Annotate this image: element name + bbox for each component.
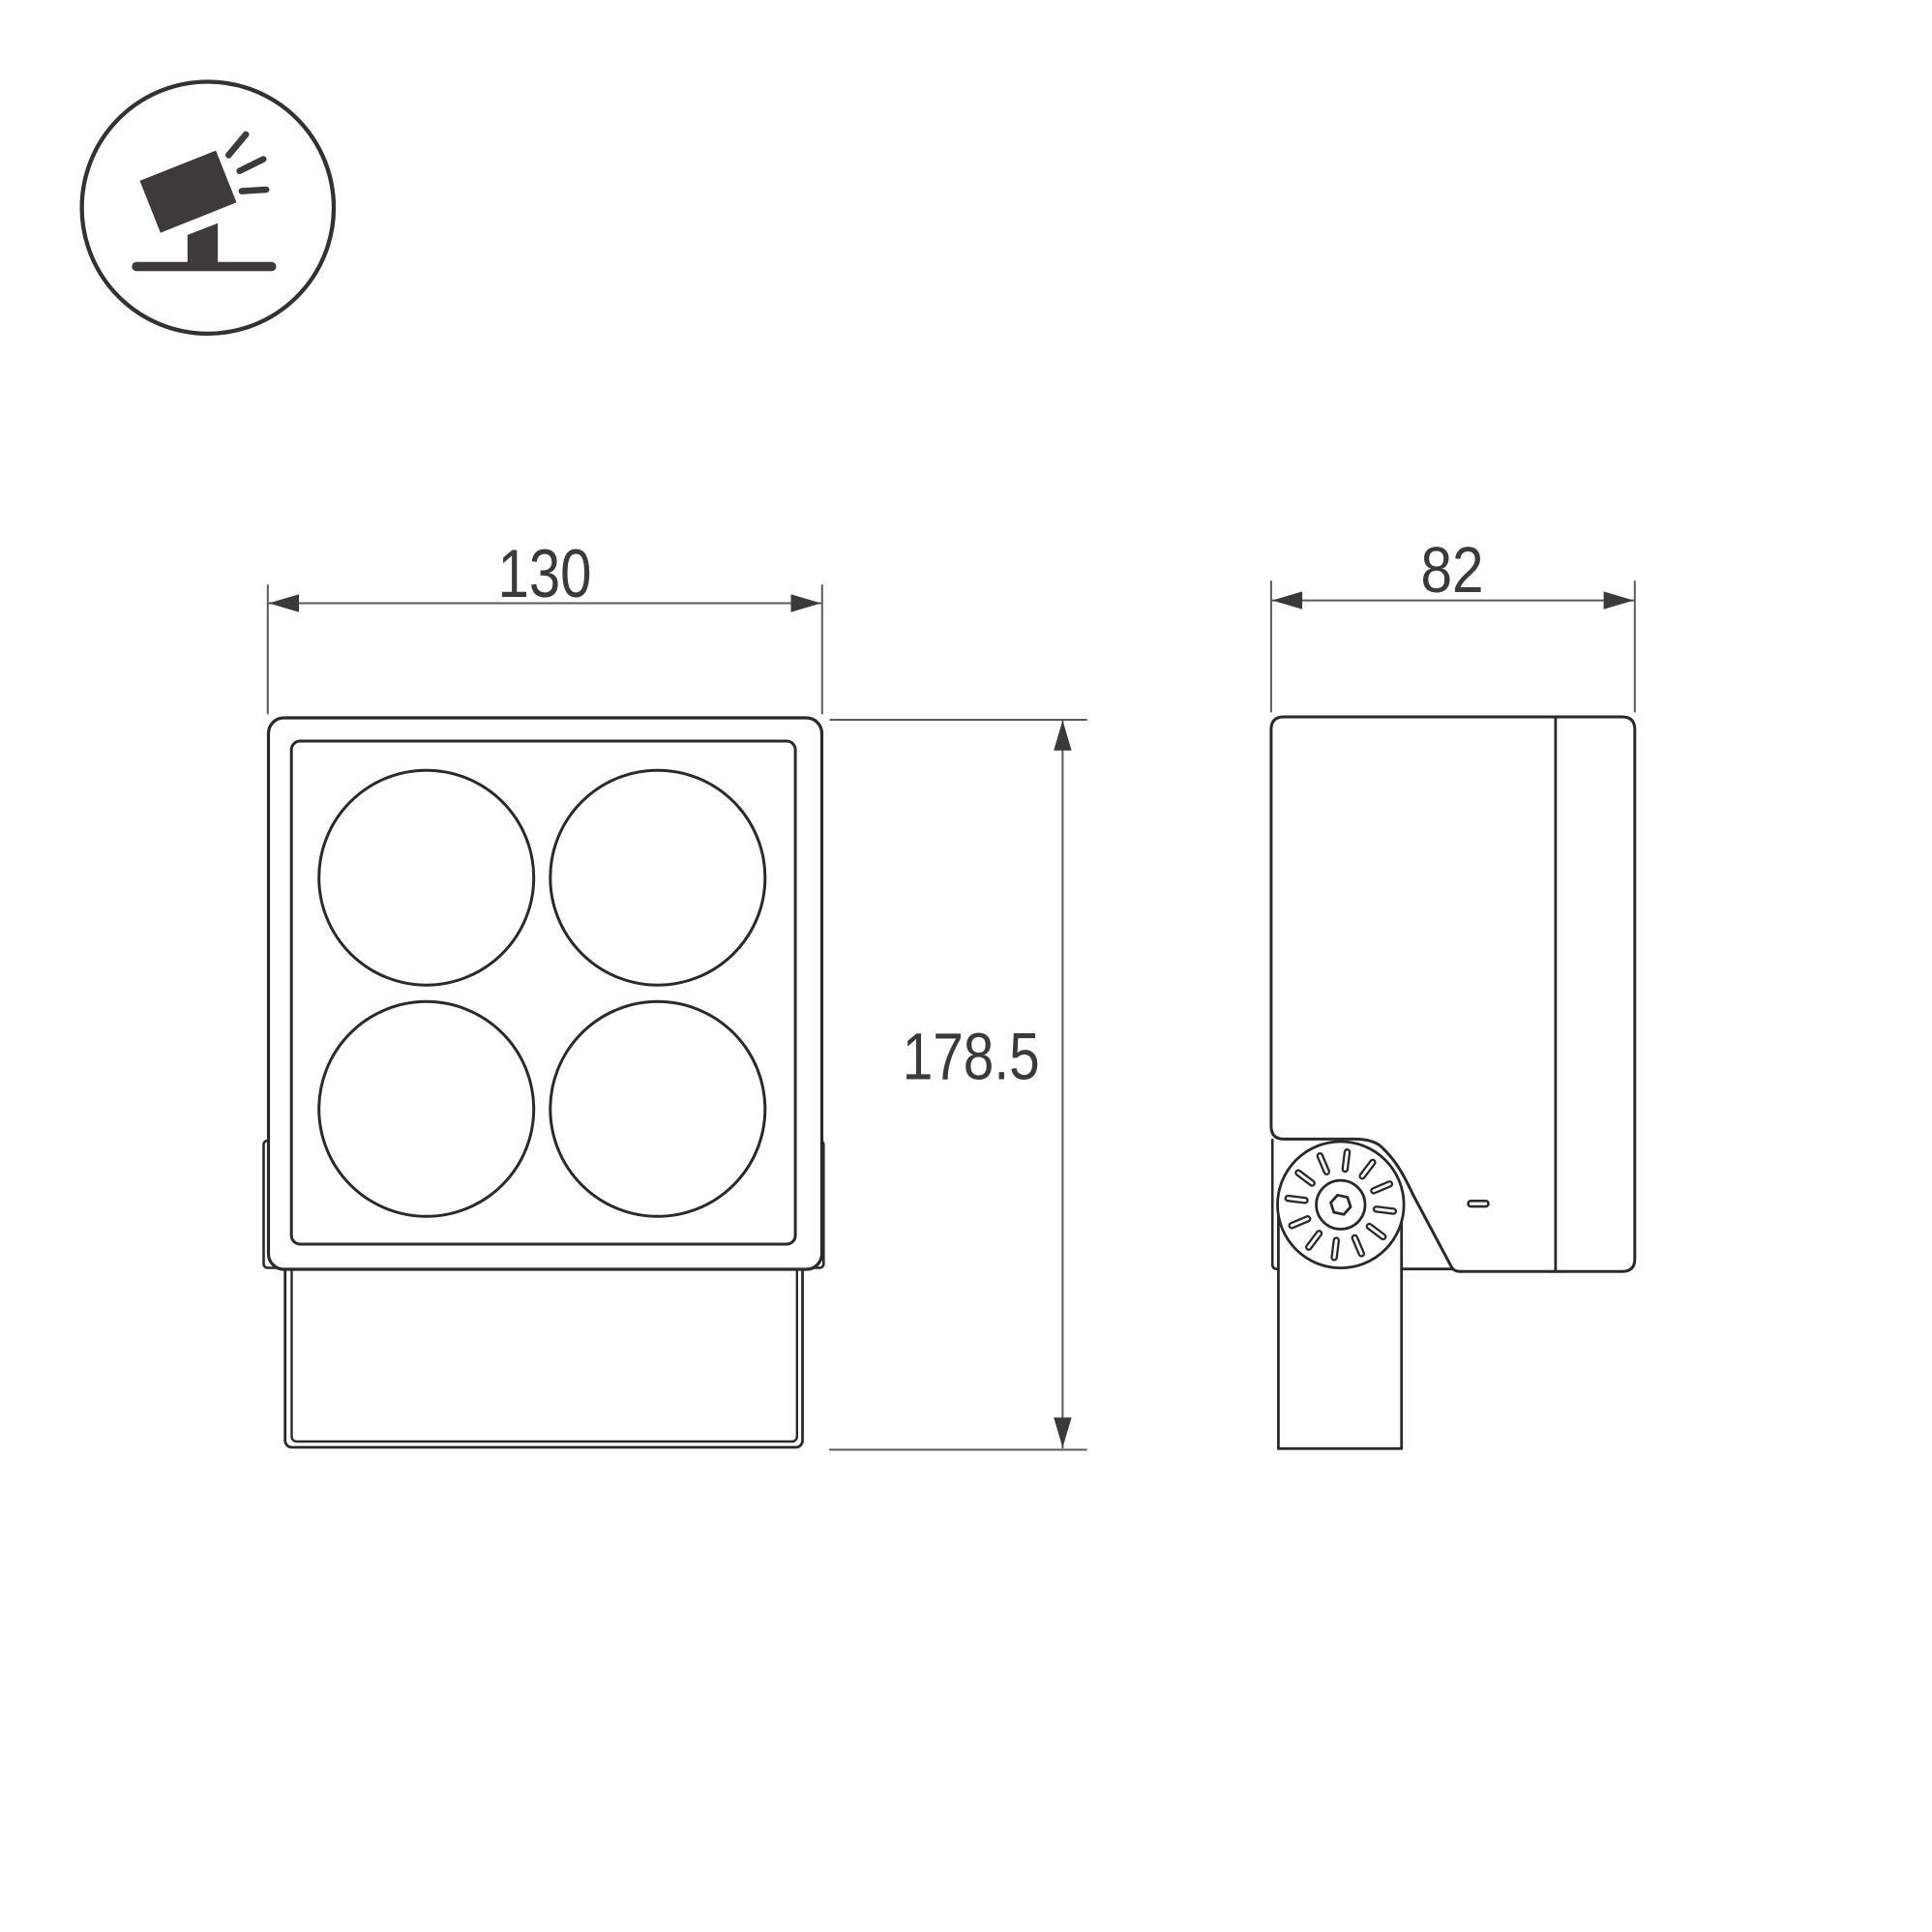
svg-text:130: 130 xyxy=(498,535,592,611)
svg-text:82: 82 xyxy=(1421,534,1484,607)
svg-text:178.5: 178.5 xyxy=(903,1021,1040,1094)
